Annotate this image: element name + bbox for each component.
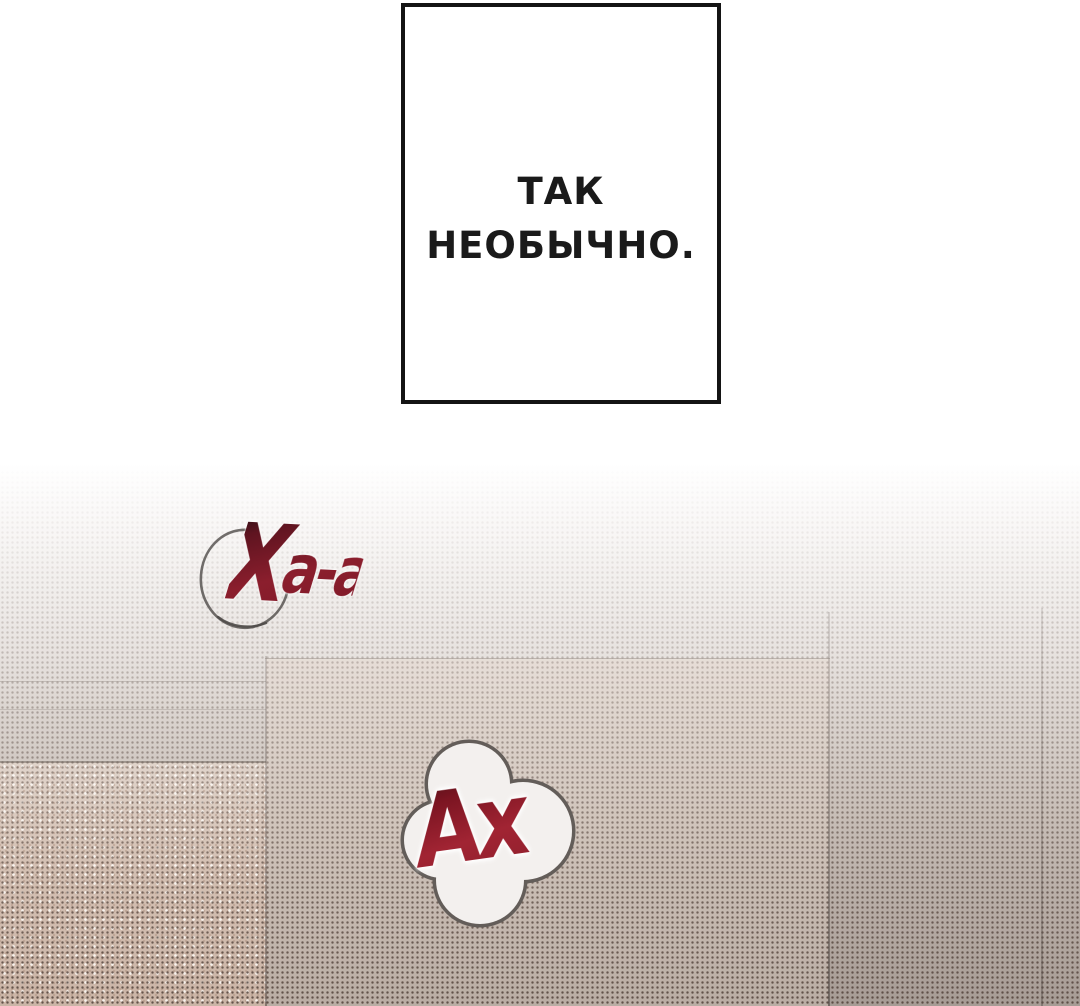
wall-seam-horizontal-left-1 bbox=[0, 681, 266, 682]
wall-seam-vertical-right bbox=[1041, 608, 1043, 1006]
sfx-ha-text: Ха-а bbox=[218, 504, 379, 629]
wall-seam-vertical-middle bbox=[828, 612, 830, 1006]
speech-box: ТАК НЕОБЫЧНО. bbox=[401, 3, 721, 404]
speech-line-1: ТАК bbox=[405, 165, 717, 219]
wall-seam-horizontal-left-2 bbox=[0, 709, 266, 710]
speech-line-2: НЕОБЫЧНО. bbox=[405, 219, 717, 273]
wall-seam-horizontal-panel-top bbox=[265, 658, 830, 659]
speech-text: ТАК НЕОБЫЧНО. bbox=[405, 165, 717, 273]
wall-seam-horizontal-left-3 bbox=[0, 761, 266, 763]
sfx-ah-text: Ах bbox=[409, 761, 531, 890]
manhwa-panel: ТАК НЕОБЫЧНО. Ха-а Ах bbox=[0, 0, 1080, 1006]
